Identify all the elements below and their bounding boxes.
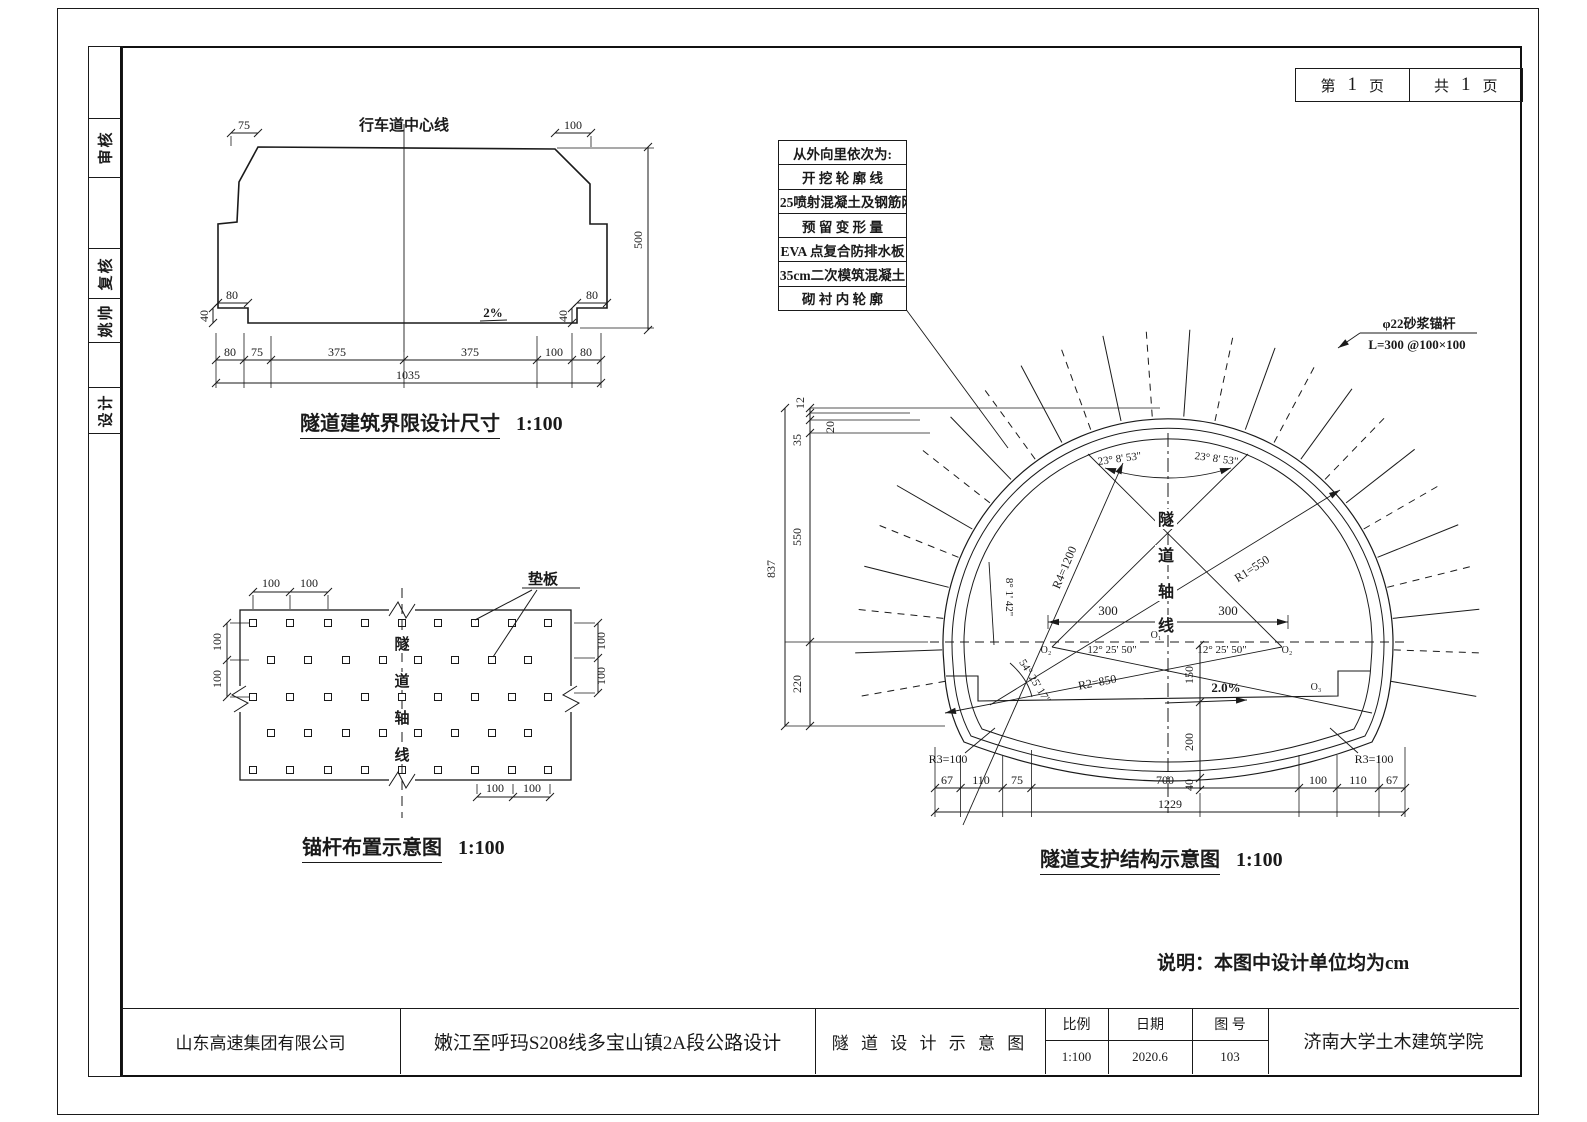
dim-label: 700 bbox=[1156, 773, 1174, 787]
angle-label: 8° 1' 42" bbox=[1003, 578, 1015, 616]
drawing-sheet: 审核 复核 姚帅 设计 第1页 共1页 行车道中心线 75 100 500 80… bbox=[0, 0, 1587, 1122]
dim-label: 300 bbox=[1098, 603, 1118, 618]
bolt-layout-generated bbox=[223, 588, 602, 801]
angle-label: 23° 8' 53" bbox=[1194, 450, 1239, 468]
page-current-num: 1 bbox=[1348, 74, 1358, 96]
institute-name: 济南大学土木建筑学院 bbox=[1268, 1008, 1519, 1074]
sidebar-label: 复核 bbox=[94, 256, 115, 290]
dim-label: 67 bbox=[1386, 773, 1398, 787]
center-point-label: O₂ bbox=[1041, 645, 1052, 656]
layer-row: 预 留 变 形 量 bbox=[779, 214, 906, 238]
dim-label: 80 bbox=[586, 288, 598, 302]
lining-layers-note: 从外向里依次为: 开 挖 轮 廓 线 C25喷射混凝土及钢筋网 预 留 变 形 … bbox=[778, 140, 907, 311]
dim-label: 75 bbox=[238, 118, 250, 132]
layer-row: 开 挖 轮 廓 线 bbox=[779, 165, 906, 189]
dim-label: 100 bbox=[486, 781, 504, 795]
layer-row: EVA 点复合防排水板 bbox=[779, 238, 906, 262]
angle-label: 12° 25' 50" bbox=[1197, 644, 1246, 656]
dim-label: 100 bbox=[1309, 773, 1327, 787]
dim-label: 75 bbox=[251, 345, 263, 359]
dim-label: 375 bbox=[461, 345, 479, 359]
page-total: 共1页 bbox=[1410, 69, 1523, 101]
support-title-scale: 1:100 bbox=[1236, 849, 1283, 871]
bolt-layout-title-text: 锚杆布置示意图 bbox=[302, 837, 442, 863]
slope-label: 2.0% bbox=[1211, 680, 1240, 695]
dim-label: 100 bbox=[210, 670, 224, 688]
clearance-diagram: 行车道中心线 75 100 500 80 40 80 40 2% 80 75 3… bbox=[140, 100, 720, 400]
support-title: 隧道支护结构示意图1:100 bbox=[1040, 843, 1283, 872]
drawing-name: 隧 道 设 计 示 意 图 bbox=[815, 1008, 1045, 1074]
dim-label: 100 bbox=[262, 576, 280, 590]
centerline-label: 行车道中心线 bbox=[358, 116, 449, 134]
dim-label: 150 bbox=[1182, 666, 1196, 684]
tunnel-axis-label: 隧 道 轴 线 bbox=[1155, 509, 1177, 635]
bolt-note-line1: φ22砂浆锚杆 bbox=[1382, 316, 1455, 331]
dim-label: 110 bbox=[1349, 773, 1367, 787]
dim-label: 1229 bbox=[1158, 797, 1182, 811]
dim-label: 100 bbox=[594, 667, 608, 685]
approval-sidebar bbox=[88, 46, 123, 1077]
dim-label: 20 bbox=[823, 421, 837, 433]
pad-label: 垫板 bbox=[528, 570, 559, 588]
radius-label: R4=1200 bbox=[1049, 544, 1079, 591]
layer-row: 砌 衬 内 轮 廓 bbox=[779, 287, 906, 310]
scale-value: 1:100 bbox=[1045, 1040, 1108, 1074]
layers-header: 从外向里依次为: bbox=[779, 141, 906, 165]
clearance-title: 隧道建筑界限设计尺寸1:100 bbox=[300, 407, 563, 436]
dim-label: 100 bbox=[545, 345, 563, 359]
support-title-text: 隧道支护结构示意图 bbox=[1040, 849, 1220, 875]
page-total-label: 共 bbox=[1434, 75, 1449, 96]
angle-label: 12° 25' 50" bbox=[1087, 644, 1136, 656]
axis-char: 隧 bbox=[1158, 510, 1174, 529]
bolt-layout-title: 锚杆布置示意图1:100 bbox=[302, 831, 505, 860]
dim-label: 100 bbox=[300, 576, 318, 590]
dim-label: 100 bbox=[594, 632, 608, 650]
dim-label: 100 bbox=[523, 781, 541, 795]
center-point-label: O₃ bbox=[1311, 682, 1322, 693]
layer-row: C25喷射混凝土及钢筋网 bbox=[779, 190, 906, 214]
layer-row: 35cm二次模筑混凝土 bbox=[779, 262, 906, 286]
page-current: 第1页 bbox=[1296, 69, 1410, 101]
dim-label: 300 bbox=[1218, 603, 1238, 618]
drawing-no-label: 图 号 bbox=[1192, 1008, 1268, 1040]
radius-label: R1=550 bbox=[1232, 552, 1272, 585]
drawing-no-value: 103 bbox=[1192, 1040, 1268, 1074]
page-number-box: 第1页 共1页 bbox=[1295, 68, 1523, 102]
axis-char: 道 bbox=[1158, 546, 1174, 565]
radius-label: R3=100 bbox=[929, 752, 968, 766]
dim-label: 220 bbox=[790, 675, 804, 693]
bench-and-road-line bbox=[946, 671, 1370, 701]
dim-label: 40 bbox=[556, 310, 570, 322]
project-name: 嫩江至呼玛S208线多宝山镇2A段公路设计 bbox=[400, 1008, 815, 1074]
dim-label: 75 bbox=[1011, 773, 1023, 787]
page-total-unit: 页 bbox=[1483, 75, 1498, 96]
dim-label: 40 bbox=[1182, 779, 1196, 791]
dim-label: 200 bbox=[1182, 733, 1196, 751]
date-label: 日期 bbox=[1108, 1008, 1192, 1040]
clearance-title-text: 隧道建筑界限设计尺寸 bbox=[300, 413, 500, 439]
axis-char: 道 bbox=[394, 672, 409, 690]
bolt-layout-title-scale: 1:100 bbox=[458, 837, 505, 859]
sidebar-cell-yaoshuai: 姚帅 bbox=[88, 298, 121, 342]
sidebar-divider bbox=[88, 342, 121, 343]
dim-label: 100 bbox=[564, 118, 582, 132]
dim-label: 1035 bbox=[396, 368, 420, 382]
dim-label: 80 bbox=[580, 345, 592, 359]
dim-label: 375 bbox=[328, 345, 346, 359]
company-name: 山东高速集团有限公司 bbox=[121, 1008, 400, 1074]
sidebar-cell-shenhe: 审核 bbox=[88, 118, 121, 177]
dim-label: 80 bbox=[226, 288, 238, 302]
general-note: 说明：本图中设计单位均为cm bbox=[1157, 948, 1409, 975]
dim-label: 40 bbox=[197, 310, 211, 322]
sidebar-divider bbox=[88, 177, 121, 178]
dim-label: 67 bbox=[941, 773, 953, 787]
page-total-num: 1 bbox=[1461, 74, 1471, 96]
axis-char: 线 bbox=[394, 746, 409, 764]
center-point-label: O₁ bbox=[1151, 630, 1162, 641]
axis-char: 轴 bbox=[394, 709, 409, 727]
dim-label: 35 bbox=[790, 434, 804, 446]
support-generated bbox=[781, 308, 1481, 825]
dim-label: 80 bbox=[224, 345, 236, 359]
radius-label: R2=850 bbox=[1077, 672, 1118, 693]
sidebar-cell-sheji: 设计 bbox=[88, 387, 121, 433]
scale-label: 比例 bbox=[1045, 1008, 1108, 1040]
dim-label: 500 bbox=[631, 231, 645, 249]
bolt-note-line2: L=300 @100×100 bbox=[1368, 337, 1465, 352]
page-current-unit: 页 bbox=[1369, 75, 1384, 96]
axis-char: 轴 bbox=[1158, 582, 1174, 601]
date-value: 2020.6 bbox=[1108, 1040, 1192, 1074]
sidebar-label: 审核 bbox=[94, 130, 115, 164]
bolt-layout-diagram: 隧 道 轴 线 垫板 100 100 100 100 100 100 100 1… bbox=[180, 540, 630, 830]
sidebar-label: 姚帅 bbox=[94, 303, 115, 337]
dim-label: 100 bbox=[210, 633, 224, 651]
sidebar-label: 设计 bbox=[94, 393, 115, 427]
dim-label: 12 bbox=[793, 397, 807, 409]
clearance-title-scale: 1:100 bbox=[516, 413, 563, 435]
slope-label: 2% bbox=[483, 305, 503, 320]
sidebar-divider bbox=[88, 433, 121, 434]
dim-label: 550 bbox=[790, 528, 804, 546]
angle-label: 23° 8' 53" bbox=[1097, 450, 1142, 468]
axis-char: 隧 bbox=[394, 635, 409, 653]
sidebar-cell-fuhe: 复核 bbox=[88, 248, 121, 298]
radius-label: R3=100 bbox=[1355, 752, 1394, 766]
page-current-label: 第 bbox=[1320, 75, 1335, 96]
clearance-outline bbox=[218, 147, 607, 323]
center-point-label: O₂ bbox=[1282, 645, 1293, 656]
dim-label: 837 bbox=[764, 560, 778, 578]
dim-label: 110 bbox=[972, 773, 990, 787]
